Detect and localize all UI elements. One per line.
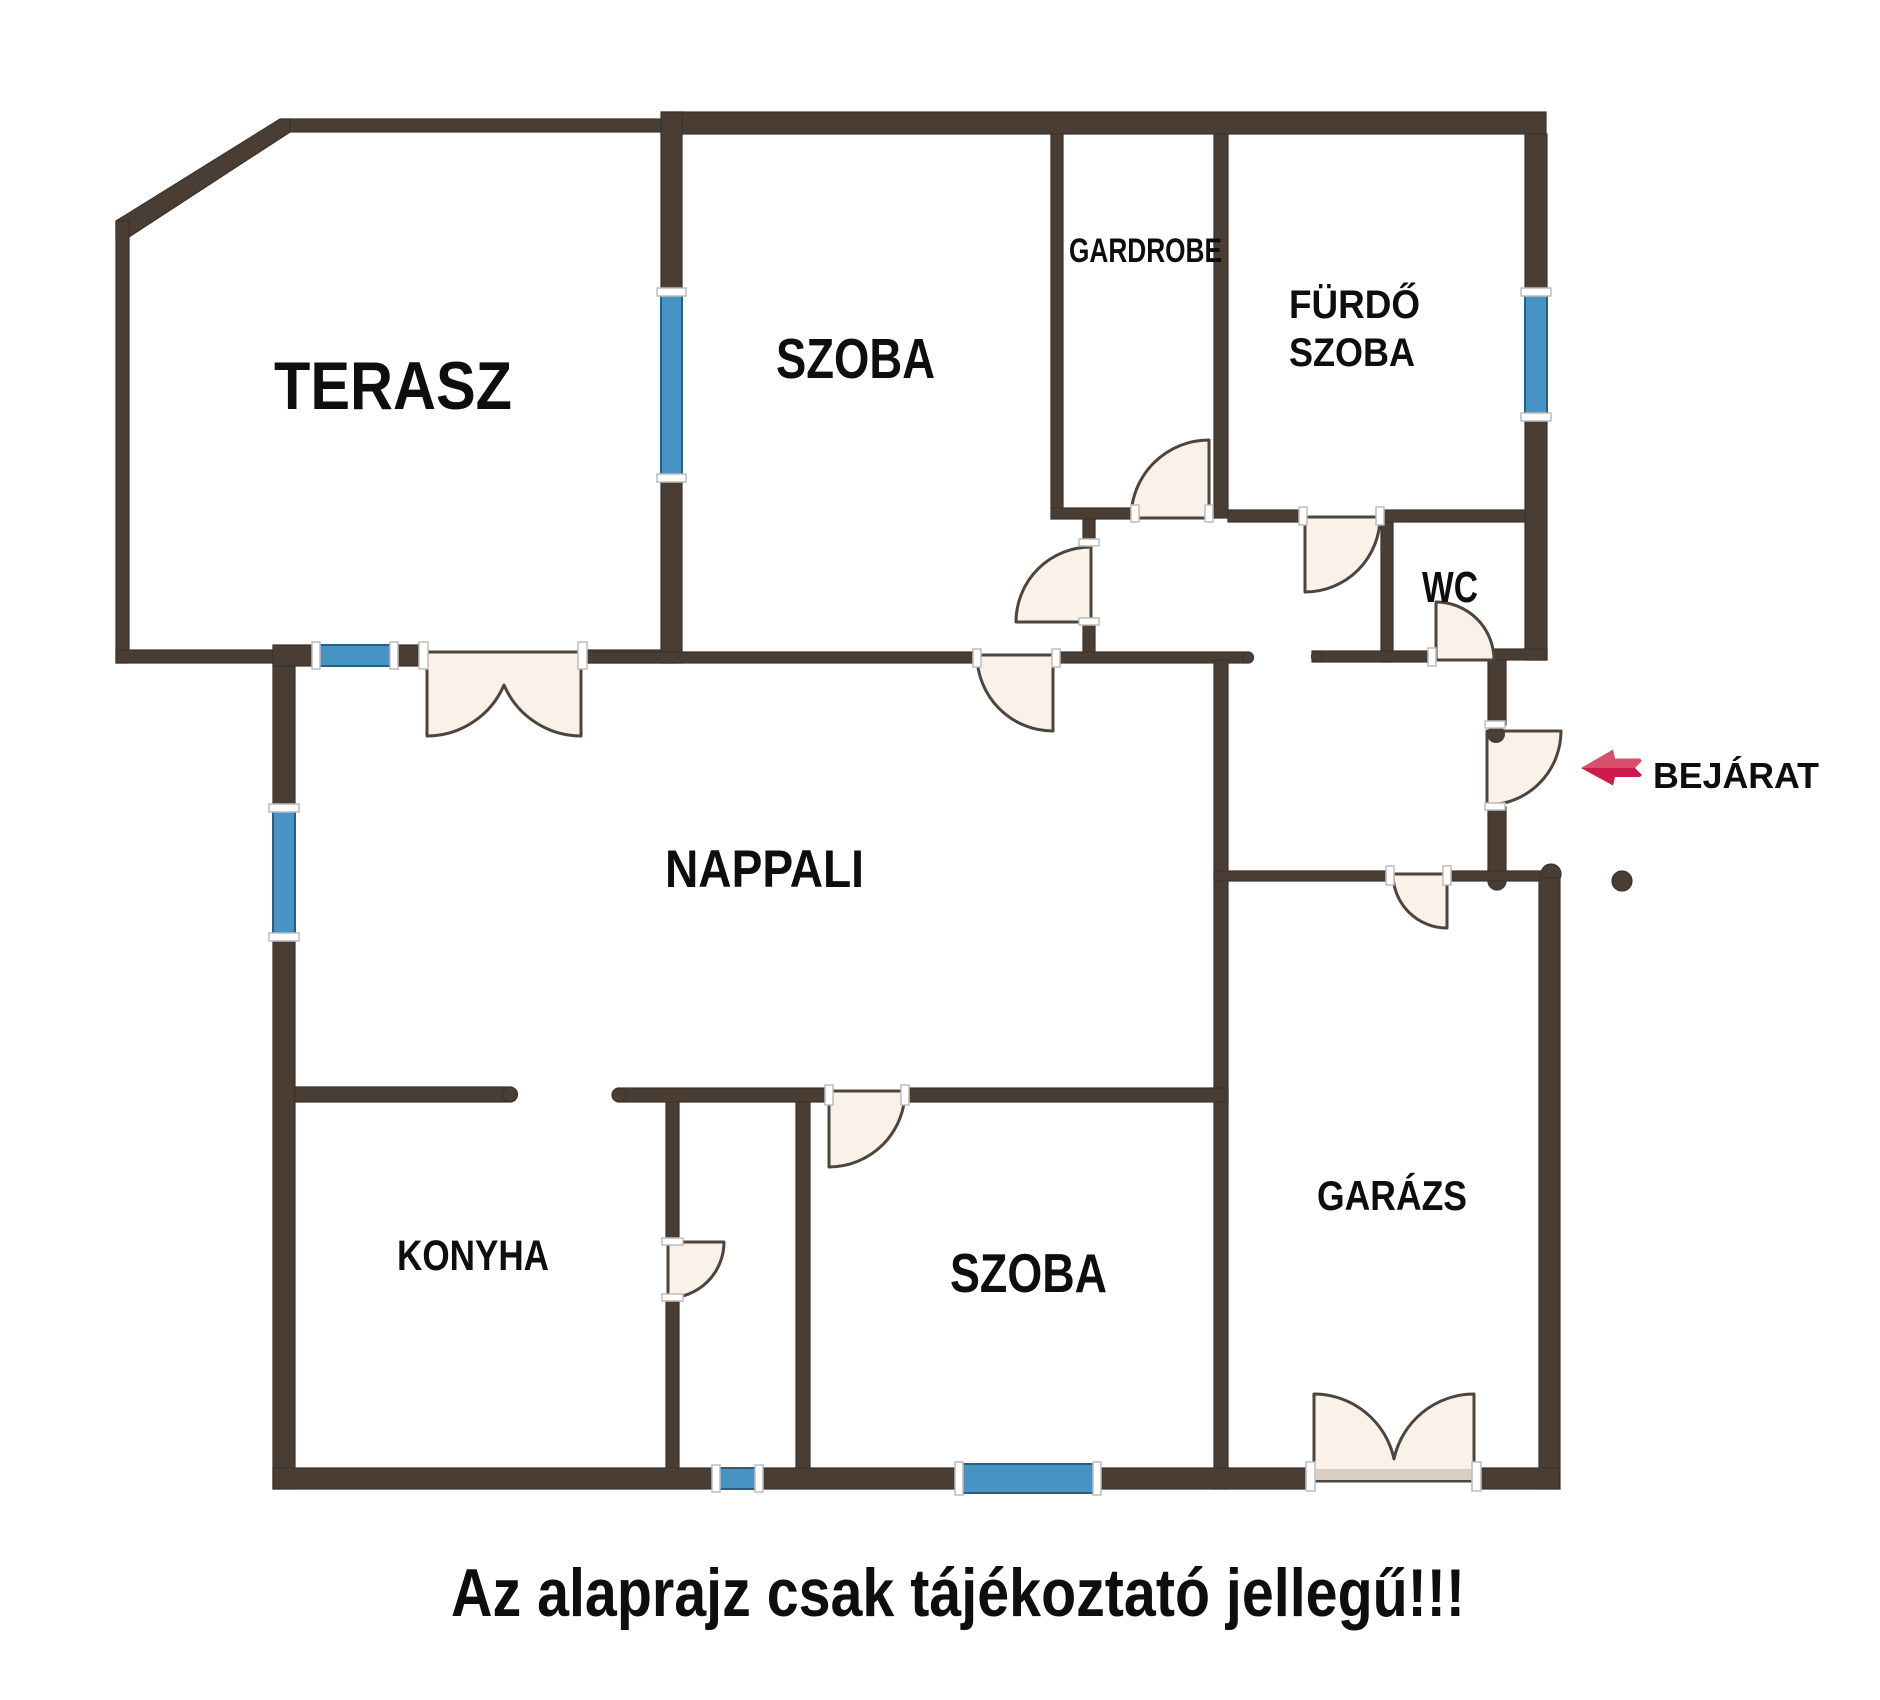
svg-text:SZOBA: SZOBA — [950, 1242, 1107, 1304]
svg-text:NAPPALI: NAPPALI — [665, 840, 864, 899]
svg-text:WC: WC — [1422, 563, 1478, 612]
svg-text:SZOBA: SZOBA — [776, 327, 935, 391]
svg-text:FÜRDŐ: FÜRDŐ — [1289, 281, 1420, 327]
svg-text:SZOBA: SZOBA — [1289, 331, 1415, 375]
svg-text:GARÁZS: GARÁZS — [1317, 1172, 1467, 1219]
svg-text:GARDROBE: GARDROBE — [1069, 232, 1222, 270]
svg-text:BEJÁRAT: BEJÁRAT — [1653, 755, 1819, 796]
svg-text:Az alaprajz csak tájékoztató j: Az alaprajz csak tájékoztató jellegű!!! — [451, 1555, 1465, 1631]
svg-text:KONYHA: KONYHA — [397, 1232, 549, 1280]
svg-text:TERASZ: TERASZ — [274, 348, 512, 424]
